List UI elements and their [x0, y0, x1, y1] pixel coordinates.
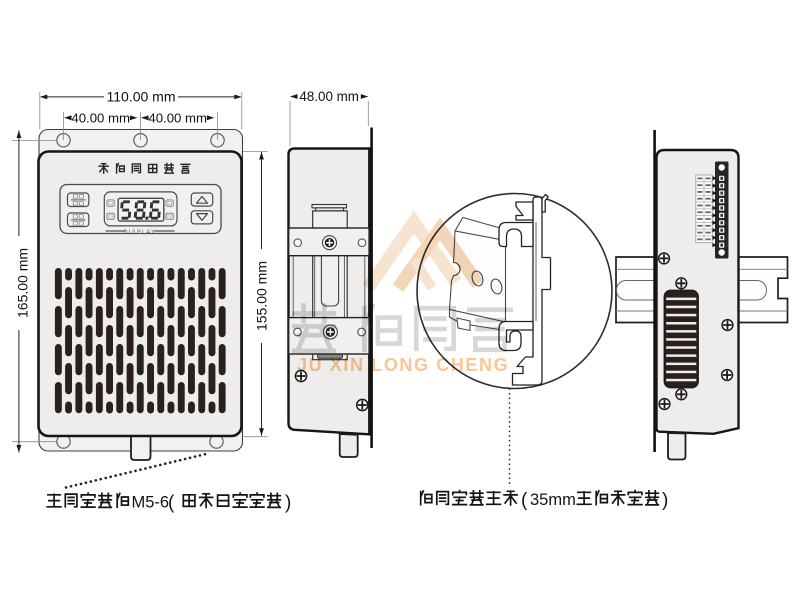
- svg-text:JU XIN LONG CHENG: JU XIN LONG CHENG: [297, 355, 509, 375]
